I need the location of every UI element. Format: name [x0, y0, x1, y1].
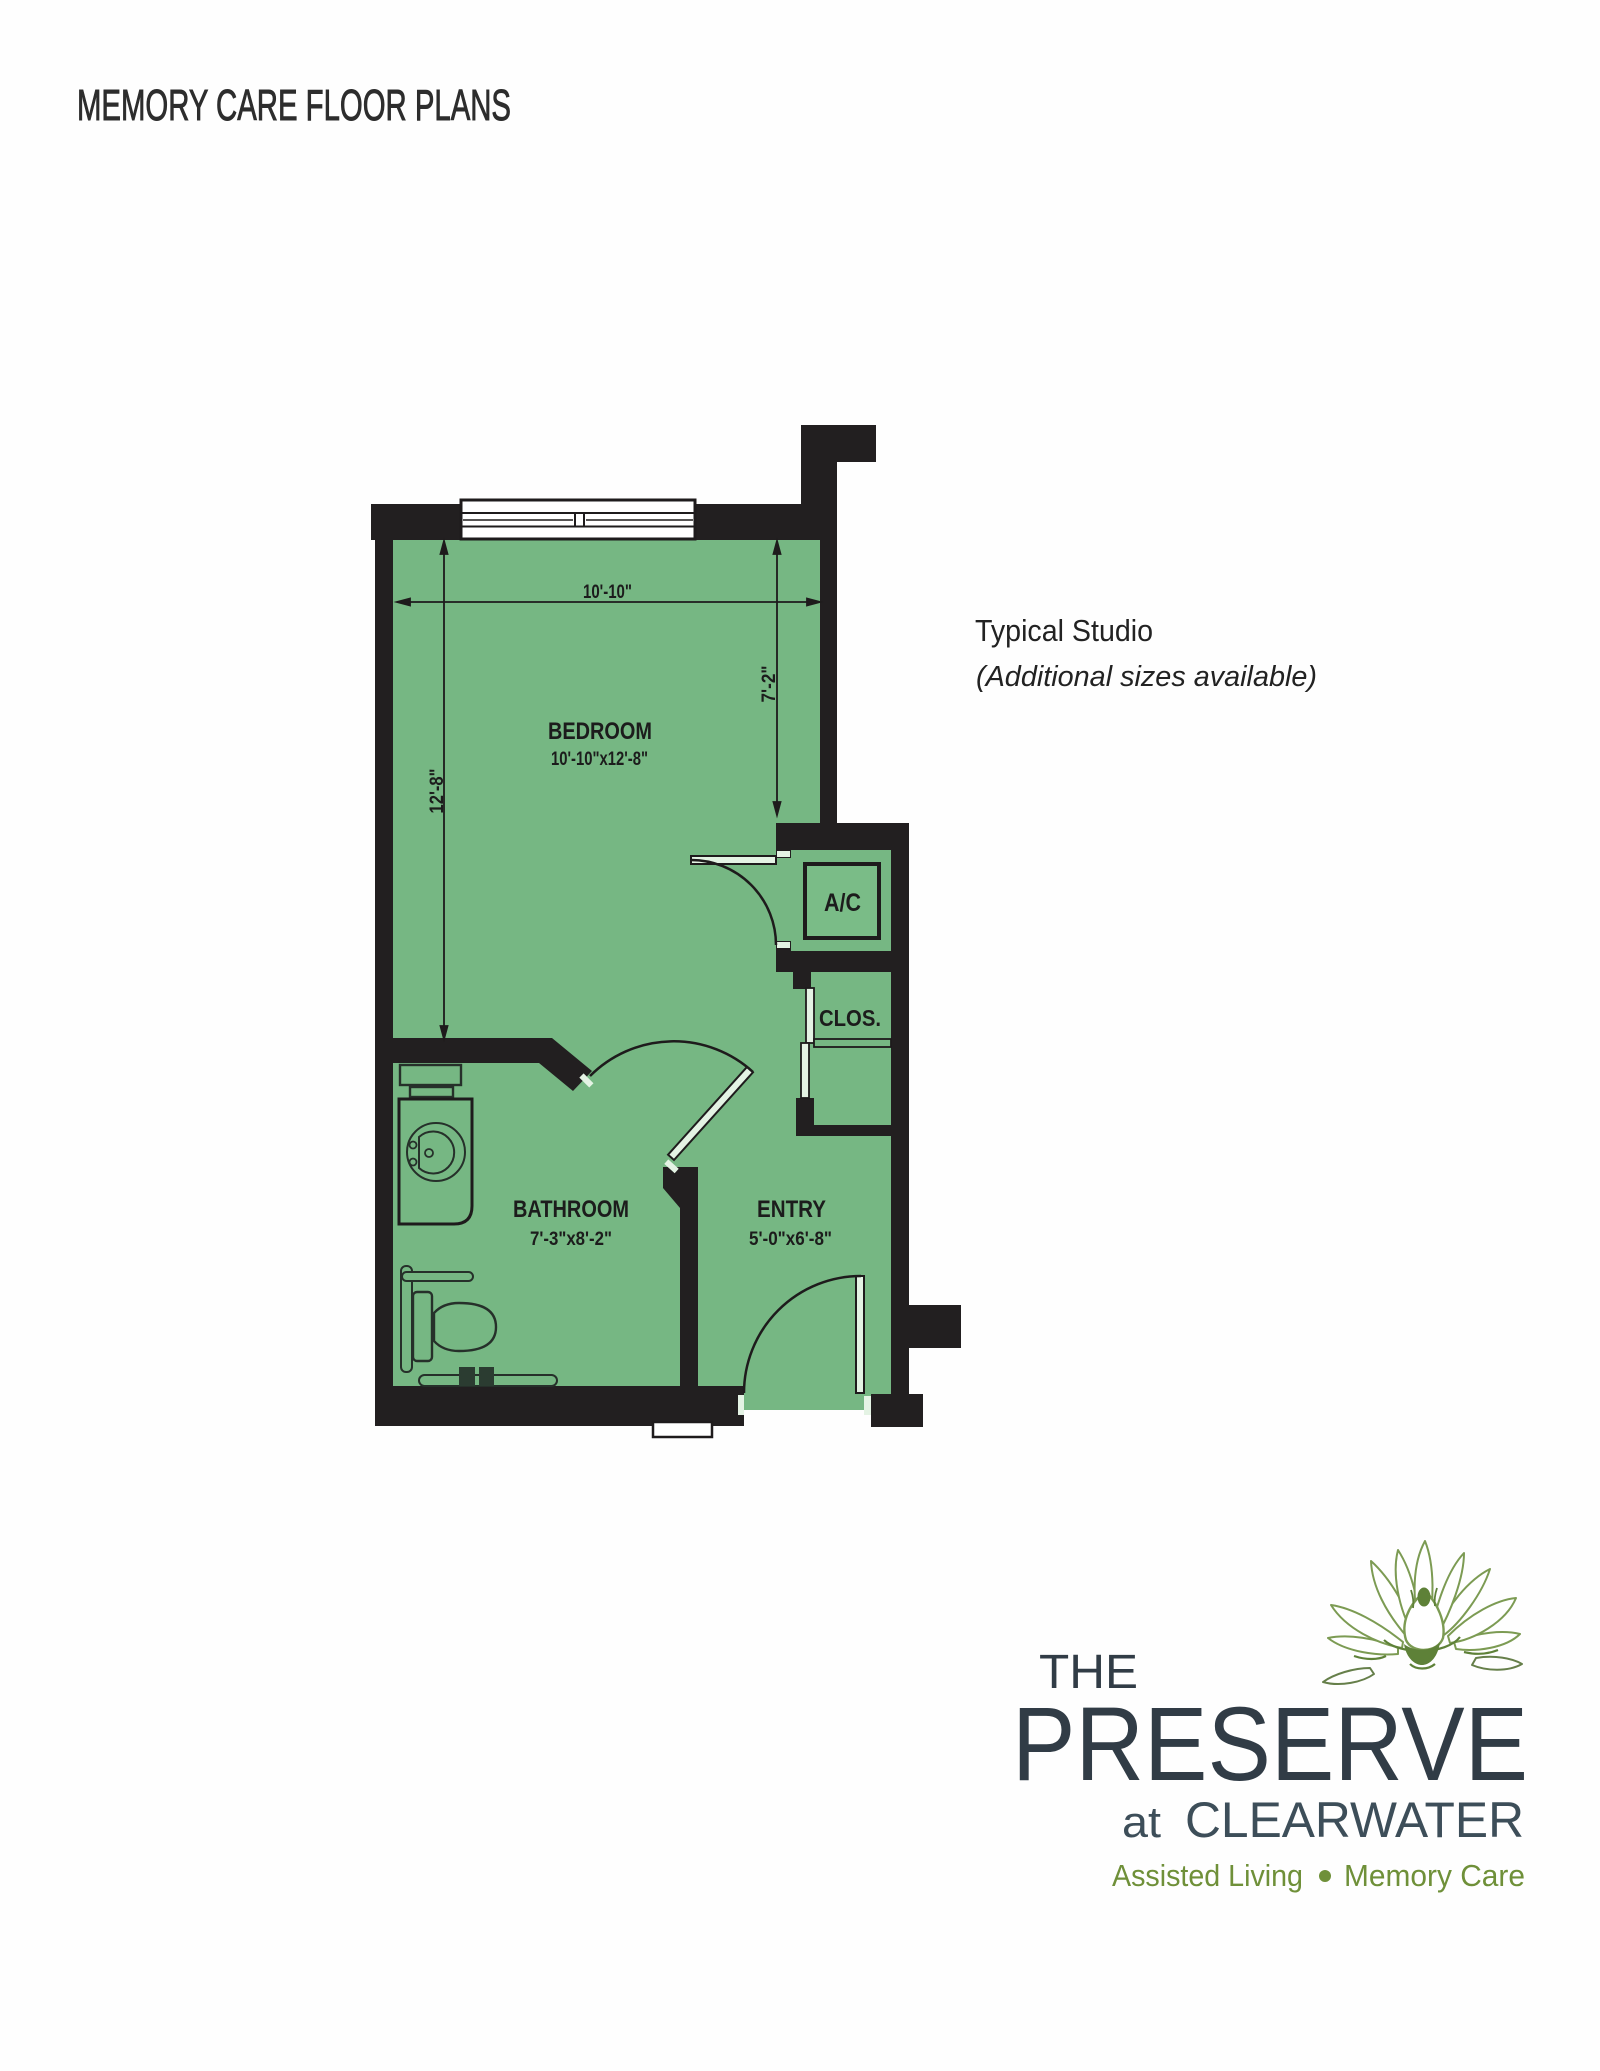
svg-text:10'-10"x12'-8": 10'-10"x12'-8" [551, 749, 648, 770]
svg-text:Assisted Living: Assisted Living [1112, 1858, 1303, 1893]
svg-text:12'-8": 12'-8" [427, 769, 448, 814]
svg-text:PRESERVE: PRESERVE [1012, 1686, 1528, 1803]
svg-text:5'-0"x6'-8": 5'-0"x6'-8" [749, 1229, 832, 1250]
svg-text:at: at [1122, 1798, 1161, 1847]
svg-text:ENTRY: ENTRY [757, 1196, 826, 1223]
svg-text:7'-2": 7'-2" [759, 666, 780, 703]
svg-text:Memory Care: Memory Care [1344, 1858, 1525, 1893]
svg-text:CLEARWATER: CLEARWATER [1185, 1792, 1524, 1848]
svg-text:BATHROOM: BATHROOM [513, 1196, 629, 1223]
svg-text:A/C: A/C [824, 889, 861, 917]
svg-text:10'-10": 10'-10" [583, 582, 632, 603]
svg-text:Typical Studio: Typical Studio [975, 613, 1153, 648]
svg-text:MEMORY CARE FLOOR PLANS: MEMORY CARE FLOOR PLANS [77, 81, 511, 130]
svg-text:BEDROOM: BEDROOM [548, 718, 652, 745]
svg-text:7'-3"x8'-2": 7'-3"x8'-2" [530, 1229, 612, 1250]
svg-text:CLOS.: CLOS. [819, 1005, 881, 1031]
svg-text:(Additional sizes available): (Additional sizes available) [976, 661, 1317, 693]
